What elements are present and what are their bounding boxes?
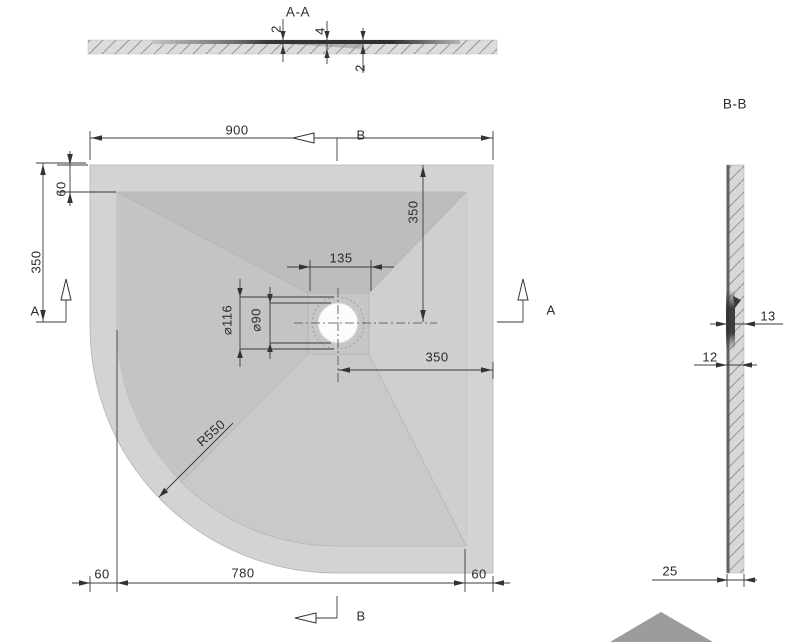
section-a-arrow-left [61, 279, 71, 300]
dim-bottom-width: 780 [232, 567, 255, 580]
dim-width-top: 900 [226, 124, 249, 137]
dim-drain-outer-dia: ⌀116 [221, 305, 234, 335]
technical-drawing-page: A-A 2 4 2 900 B 60 350 350 A A 135 ⌀116 … [0, 0, 785, 642]
section-aa-label: A-A [286, 5, 310, 19]
marker-b-top: B [356, 129, 365, 142]
dim-aa-edge-left: 2 [270, 25, 283, 33]
dim-drain-to-right: 350 [426, 351, 449, 364]
section-aa-view [88, 19, 497, 73]
dim-left-to-section: 350 [30, 251, 43, 274]
dim-bb-lip: 13 [760, 310, 775, 323]
dim-bb-thickness: 25 [662, 565, 677, 578]
dim-aa-edge-right: 2 [354, 64, 367, 72]
section-b-arrow-top [293, 133, 314, 143]
dim-bottom-left-rim: 60 [94, 568, 109, 581]
isometric-corner [610, 612, 713, 642]
dim-rim-top-left: 60 [55, 181, 68, 196]
dim-drain-recess: 135 [330, 252, 353, 265]
marker-a-left: A [30, 305, 39, 318]
section-b-arrow-bottom [295, 613, 316, 623]
drawing-geometry [0, 0, 785, 642]
dim-drain-hole-dia: ⌀90 [250, 308, 263, 332]
marker-a-right: A [546, 304, 555, 317]
dim-aa-drain-depth: 4 [314, 27, 327, 35]
bb-tray-edge [727, 165, 730, 573]
section-bb-view [652, 165, 783, 587]
section-a-arrow-right [518, 279, 528, 300]
tray-cross-section [152, 40, 460, 44]
bb-hatch [727, 165, 744, 573]
dim-bottom-right-rim: 60 [471, 568, 486, 581]
marker-b-bottom: B [356, 610, 365, 623]
dim-top-to-drain: 350 [407, 201, 420, 224]
dim-bb-body: 12 [702, 351, 717, 364]
plan-view [36, 131, 528, 623]
section-bb-label: B-B [723, 97, 747, 111]
